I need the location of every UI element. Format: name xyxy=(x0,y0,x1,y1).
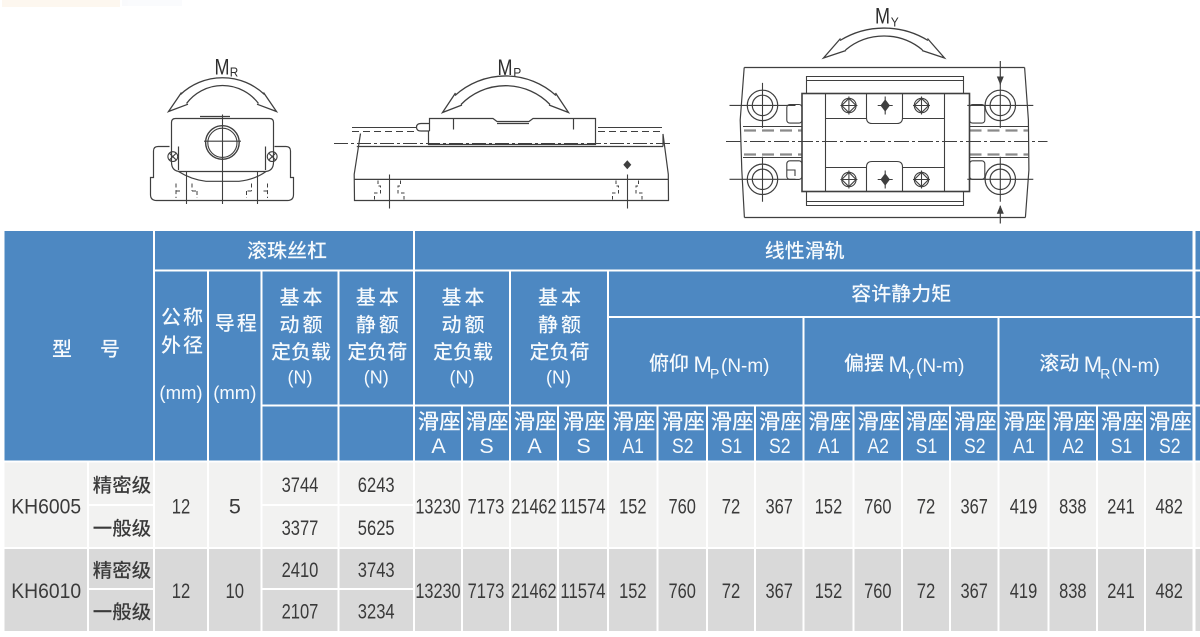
svg-text:S: S xyxy=(479,434,493,458)
svg-text:241: 241 xyxy=(1107,579,1134,603)
svg-text:152: 152 xyxy=(815,495,842,519)
svg-text:367: 367 xyxy=(961,579,988,603)
svg-text:838: 838 xyxy=(1059,495,1086,519)
svg-text:419: 419 xyxy=(1010,495,1037,519)
svg-text:12: 12 xyxy=(172,579,191,603)
svg-text:R: R xyxy=(1100,366,1110,382)
svg-text:21462: 21462 xyxy=(511,579,556,603)
svg-text:760: 760 xyxy=(864,495,891,519)
svg-text:72: 72 xyxy=(917,579,936,603)
svg-text:3377: 3377 xyxy=(282,516,319,540)
svg-text:760: 760 xyxy=(669,579,696,603)
svg-text:(N): (N) xyxy=(288,368,313,388)
svg-text:12: 12 xyxy=(172,495,191,519)
svg-text:Y: Y xyxy=(891,15,899,30)
svg-text:(mm): (mm) xyxy=(159,382,202,403)
svg-text:72: 72 xyxy=(917,495,936,519)
svg-text:760: 760 xyxy=(669,495,696,519)
svg-text:S1: S1 xyxy=(1111,434,1133,458)
svg-text:5625: 5625 xyxy=(358,516,395,540)
svg-text:A2: A2 xyxy=(867,434,889,458)
svg-text:152: 152 xyxy=(619,579,646,603)
svg-text:10: 10 xyxy=(226,579,245,603)
svg-text:P: P xyxy=(710,366,719,382)
svg-text:S2: S2 xyxy=(964,434,986,458)
svg-text:S2: S2 xyxy=(769,434,791,458)
svg-text:(N-m): (N-m) xyxy=(721,355,770,377)
svg-text:2410: 2410 xyxy=(282,558,319,582)
svg-text:(mm): (mm) xyxy=(213,382,256,403)
svg-text:(N-m): (N-m) xyxy=(1111,355,1160,377)
svg-text:7173: 7173 xyxy=(468,495,505,519)
svg-text:(N): (N) xyxy=(364,368,389,388)
svg-text:A: A xyxy=(527,434,542,458)
svg-text:(N): (N) xyxy=(450,368,475,388)
svg-text:M: M xyxy=(875,4,890,29)
svg-text:21462: 21462 xyxy=(511,495,556,519)
svg-text:838: 838 xyxy=(1059,579,1086,603)
svg-text:R: R xyxy=(230,65,239,80)
svg-text:3743: 3743 xyxy=(358,558,395,582)
svg-text:367: 367 xyxy=(766,495,793,519)
svg-text:5: 5 xyxy=(229,495,241,519)
svg-text:11574: 11574 xyxy=(560,579,605,603)
svg-text:3234: 3234 xyxy=(358,600,395,624)
svg-text:S: S xyxy=(576,434,590,458)
svg-text:S1: S1 xyxy=(916,434,938,458)
svg-text:241: 241 xyxy=(1107,495,1134,519)
svg-text:A1: A1 xyxy=(1013,434,1035,458)
svg-text:(N-m): (N-m) xyxy=(916,355,965,377)
svg-text:367: 367 xyxy=(961,495,988,519)
svg-text:152: 152 xyxy=(815,579,842,603)
svg-text:S2: S2 xyxy=(672,434,694,458)
svg-text:482: 482 xyxy=(1156,579,1183,603)
svg-text:760: 760 xyxy=(864,579,891,603)
svg-text:M: M xyxy=(215,55,230,80)
svg-text:482: 482 xyxy=(1156,495,1183,519)
svg-text:KH6005: KH6005 xyxy=(11,495,81,519)
svg-text:A2: A2 xyxy=(1062,434,1084,458)
svg-text:2107: 2107 xyxy=(282,600,319,624)
svg-text:3744: 3744 xyxy=(282,473,319,497)
svg-text:152: 152 xyxy=(619,495,646,519)
svg-text:S1: S1 xyxy=(721,434,743,458)
svg-text:72: 72 xyxy=(722,579,741,603)
svg-text:11574: 11574 xyxy=(560,495,605,519)
svg-text:13230: 13230 xyxy=(415,495,460,519)
svg-text:Y: Y xyxy=(905,366,915,382)
svg-text:KH6010: KH6010 xyxy=(11,579,81,603)
svg-text:7173: 7173 xyxy=(468,579,505,603)
svg-text:367: 367 xyxy=(766,579,793,603)
svg-text:A1: A1 xyxy=(622,434,644,458)
svg-text:S2: S2 xyxy=(1159,434,1181,458)
svg-text:72: 72 xyxy=(722,495,741,519)
svg-text:(N): (N) xyxy=(546,368,571,388)
svg-text:A1: A1 xyxy=(818,434,840,458)
svg-text:13230: 13230 xyxy=(415,579,460,603)
svg-text:419: 419 xyxy=(1010,579,1037,603)
svg-text:6243: 6243 xyxy=(358,473,395,497)
svg-text:A: A xyxy=(431,434,446,458)
